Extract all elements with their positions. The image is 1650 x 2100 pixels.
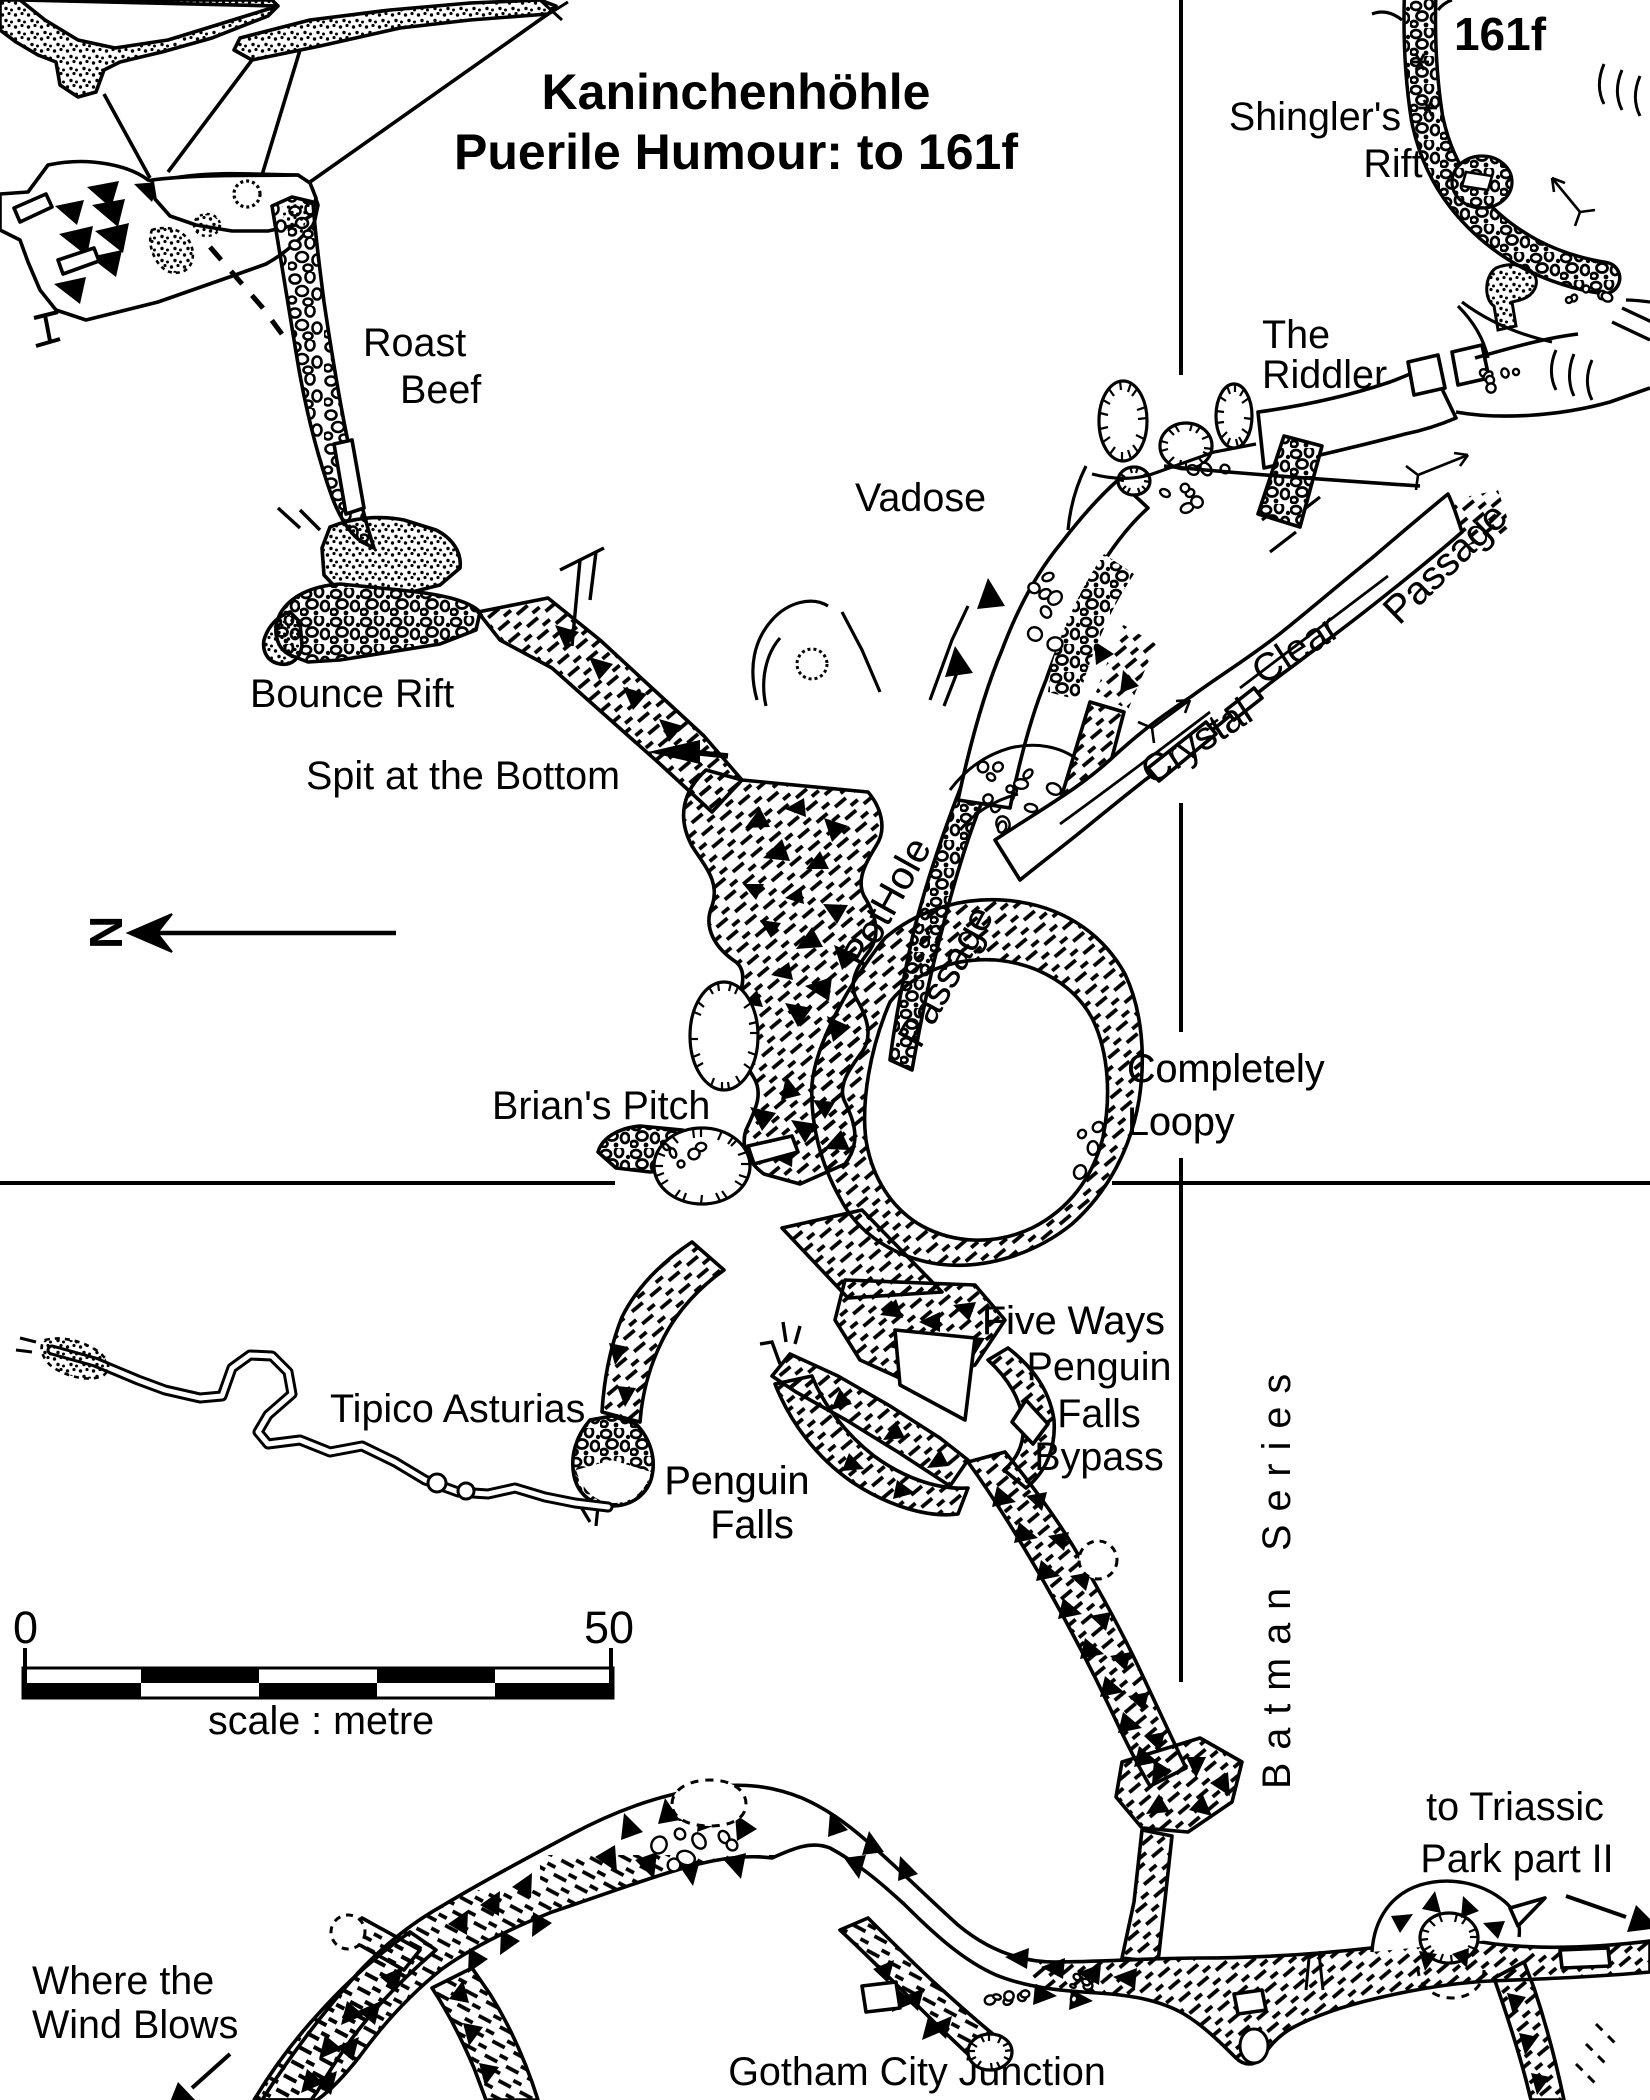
svg-text:Vadose: Vadose xyxy=(855,476,986,520)
svg-text:The: The xyxy=(1262,313,1330,357)
svg-text:Gotham City Junction: Gotham City Junction xyxy=(728,2050,1106,2094)
svg-text:Falls: Falls xyxy=(710,1503,793,1547)
svg-text:Wind Blows: Wind Blows xyxy=(32,2003,238,2047)
svg-text:Completely: Completely xyxy=(1127,1047,1325,1091)
svg-text:Tipico Asturias: Tipico Asturias xyxy=(330,1387,585,1431)
svg-text:Shingler's: Shingler's xyxy=(1229,95,1401,139)
svg-text:Falls: Falls xyxy=(1057,1392,1140,1436)
svg-text:to Triassic: to Triassic xyxy=(1426,1785,1604,1829)
svg-text:0: 0 xyxy=(13,1602,38,1653)
svg-text:Roast: Roast xyxy=(363,321,466,365)
svg-text:50: 50 xyxy=(584,1602,634,1653)
svg-text:161f: 161f xyxy=(1454,8,1547,60)
svg-text:scale : metre: scale : metre xyxy=(208,1699,434,1743)
svg-text:N: N xyxy=(80,916,132,949)
svg-text:Batman Series: Batman Series xyxy=(1255,1361,1299,1789)
svg-text:Park part II: Park part II xyxy=(1420,1837,1613,1881)
svg-text:Beef: Beef xyxy=(400,368,482,412)
svg-text:Penguin: Penguin xyxy=(665,1459,810,1503)
svg-text:Kaninchenhöhle: Kaninchenhöhle xyxy=(542,64,931,120)
svg-text:Puerile Humour: to 161f: Puerile Humour: to 161f xyxy=(454,124,1018,180)
svg-text:Where the: Where the xyxy=(32,1959,214,2003)
svg-text:Penguin: Penguin xyxy=(1027,1345,1172,1389)
svg-text:Spit at the Bottom: Spit at the Bottom xyxy=(306,754,620,798)
svg-text:Rift: Rift xyxy=(1363,142,1422,186)
svg-text:Bounce Rift: Bounce Rift xyxy=(250,672,454,716)
svg-text:Brian's Pitch: Brian's Pitch xyxy=(492,1084,710,1128)
svg-text:Five Ways: Five Ways xyxy=(982,1299,1165,1343)
svg-text:Loopy: Loopy xyxy=(1127,1100,1235,1144)
